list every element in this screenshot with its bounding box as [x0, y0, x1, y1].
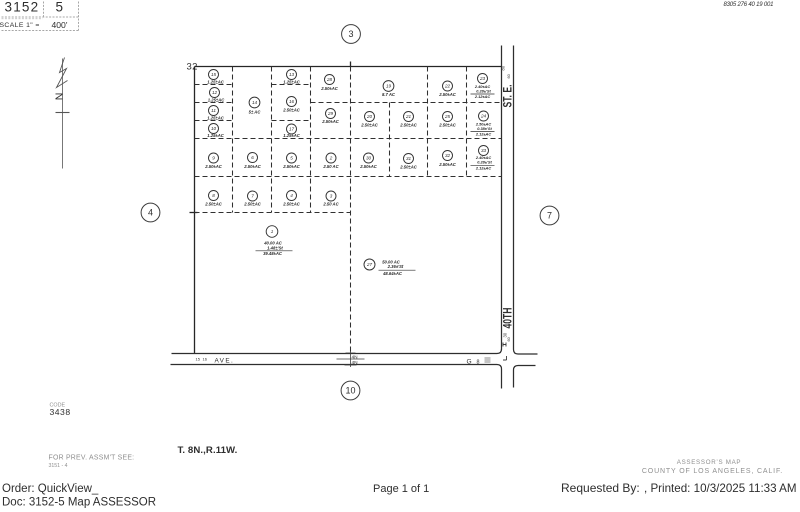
- svg-text:2.36±'St: 2.36±'St: [387, 264, 404, 269]
- svg-text:19: 19: [386, 84, 392, 89]
- svg-text:10: 10: [345, 386, 355, 396]
- svg-text:4: 4: [290, 193, 293, 198]
- svg-text:AVE.: AVE.: [215, 358, 235, 365]
- svg-text:60: 60: [507, 337, 511, 341]
- svg-text:40TH: 40TH: [503, 308, 515, 329]
- svg-text:2.50±AC: 2.50±AC: [359, 164, 377, 169]
- svg-text:0.28±'St: 0.28±'St: [477, 160, 492, 165]
- svg-text:2.50±AC: 2.50±AC: [282, 164, 300, 169]
- svg-text:SCALE 1" =: SCALE 1" =: [0, 22, 40, 29]
- svg-text:5: 5: [56, 0, 64, 15]
- svg-text:2.50±AC: 2.50±AC: [282, 202, 300, 207]
- svg-text:8.7 AC: 8.7 AC: [382, 92, 396, 97]
- svg-text:1.25±AC: 1.25±AC: [283, 79, 300, 84]
- svg-text:2.50 AC: 2.50 AC: [322, 164, 339, 169]
- svg-text:2.50±AC: 2.50±AC: [282, 108, 300, 113]
- svg-text:2.50±AC: 2.50±AC: [204, 164, 222, 169]
- svg-text:11: 11: [211, 108, 216, 113]
- svg-text:6: 6: [251, 155, 254, 160]
- svg-text:24: 24: [480, 114, 487, 119]
- svg-text:ST. E.: ST. E.: [503, 85, 515, 108]
- svg-text:Doc: 3152-5 Map ASSESSOR: Doc: 3152-5 Map ASSESSOR: [2, 497, 156, 509]
- svg-text:2.12±AC: 2.12±AC: [475, 132, 492, 137]
- svg-text:4: 4: [148, 208, 153, 218]
- svg-text:2.50±AC: 2.50±AC: [438, 123, 456, 128]
- svg-text:32: 32: [445, 153, 451, 158]
- svg-text:9: 9: [212, 156, 215, 161]
- svg-text:2.50±AC: 2.50±AC: [399, 123, 417, 128]
- svg-text:2.50 AC: 2.50 AC: [322, 202, 339, 207]
- svg-text:10: 10: [211, 126, 217, 131]
- svg-text:29: 29: [327, 111, 334, 116]
- svg-text:1.25±AC: 1.25±AC: [208, 97, 225, 102]
- svg-text:20: 20: [366, 114, 373, 119]
- svg-text:0.28±'St: 0.28±'St: [476, 89, 491, 94]
- svg-text:2.50±AC: 2.50±AC: [399, 165, 417, 170]
- svg-text:12: 12: [212, 90, 218, 95]
- svg-text:4N: 4N: [352, 360, 359, 366]
- svg-text:8: 8: [477, 360, 480, 366]
- svg-text:8305 276 40 19 001: 8305 276 40 19 001: [724, 2, 774, 8]
- svg-text:3: 3: [330, 194, 333, 199]
- svg-text:7: 7: [547, 211, 552, 221]
- svg-text:2.50±AC: 2.50±AC: [360, 123, 378, 128]
- svg-text:COUNTY OF LOS ANGELES, CALIF.: COUNTY OF LOS ANGELES, CALIF.: [642, 468, 783, 475]
- svg-text:39.48±AC: 39.48±AC: [263, 251, 283, 256]
- svg-text:2.50±AC: 2.50±AC: [438, 92, 456, 97]
- svg-text:2.12±AC: 2.12±AC: [474, 94, 491, 99]
- svg-text:2: 2: [329, 156, 333, 161]
- svg-text:23: 23: [479, 76, 486, 81]
- svg-text:17: 17: [289, 127, 295, 132]
- svg-text:33: 33: [481, 148, 487, 153]
- svg-text:3438: 3438: [50, 407, 71, 417]
- svg-text:, Printed: 10/3/2025 11:33 AM: , Printed: 10/3/2025 11:33 AM: [644, 482, 797, 495]
- svg-text:1.25±AC: 1.25±AC: [283, 133, 300, 138]
- svg-text:Page 1 of 1: Page 1 of 1: [373, 483, 429, 495]
- svg-text:28: 28: [326, 77, 333, 82]
- svg-text:2.12±AC: 2.12±AC: [475, 166, 492, 171]
- svg-text:31: 31: [406, 156, 412, 161]
- svg-text:N: N: [54, 93, 66, 101]
- svg-text:1: 1: [271, 229, 274, 234]
- svg-text:2.50±AC: 2.50±AC: [320, 86, 338, 91]
- svg-text:1.25±AC: 1.25±AC: [207, 133, 224, 138]
- svg-text:25: 25: [444, 114, 451, 119]
- svg-text:1.48±'St: 1.48±'St: [267, 245, 283, 250]
- svg-text:13: 13: [289, 72, 295, 77]
- svg-text:7: 7: [251, 194, 254, 199]
- svg-text:G: G: [467, 359, 473, 366]
- svg-text:15: 15: [196, 357, 201, 362]
- svg-text:2.50±AC: 2.50±AC: [243, 164, 261, 169]
- svg-text:2.50±AC: 2.50±AC: [204, 202, 222, 207]
- svg-text:16: 16: [203, 357, 208, 362]
- svg-text:60: 60: [507, 74, 511, 78]
- svg-text:3: 3: [348, 29, 353, 39]
- svg-text:Order: QuickView_: Order: QuickView_: [2, 483, 99, 495]
- svg-text:15: 15: [211, 72, 217, 77]
- svg-text:3151 - 4: 3151 - 4: [49, 463, 68, 469]
- svg-text:ASSESSOR’S MAP: ASSESSOR’S MAP: [677, 459, 741, 466]
- svg-text:5± AC: 5± AC: [249, 110, 262, 115]
- svg-text:1.25±AC: 1.25±AC: [207, 79, 224, 84]
- svg-text:27: 27: [366, 262, 373, 267]
- svg-text:400': 400': [52, 20, 68, 30]
- svg-text:22: 22: [444, 84, 451, 89]
- svg-text:0.38±'St: 0.38±'St: [477, 126, 492, 131]
- svg-text:3152: 3152: [5, 0, 40, 15]
- svg-text:Requested By:: Requested By:: [561, 481, 640, 495]
- svg-text:48.64±AC: 48.64±AC: [382, 271, 403, 276]
- svg-text:16: 16: [289, 99, 295, 104]
- svg-text:FOR PREV. ASSM'T SEE:: FOR PREV. ASSM'T SEE:: [49, 455, 135, 462]
- svg-text:5: 5: [290, 156, 293, 161]
- svg-text:T. 8N.,R.11W.: T. 8N.,R.11W.: [178, 445, 238, 456]
- svg-text:8: 8: [212, 193, 215, 198]
- svg-text:21: 21: [405, 114, 412, 119]
- svg-text:2.50±AC: 2.50±AC: [321, 119, 339, 124]
- svg-text:14: 14: [252, 100, 258, 105]
- svg-text:1.25±AC: 1.25±AC: [207, 115, 224, 120]
- svg-text:4N: 4N: [352, 355, 359, 361]
- svg-text:80: 80: [501, 65, 506, 70]
- svg-text:30: 30: [503, 332, 508, 337]
- svg-text:2.50±AC: 2.50±AC: [243, 202, 261, 207]
- svg-text:30: 30: [366, 156, 372, 161]
- svg-text:2.50±AC: 2.50±AC: [438, 162, 456, 167]
